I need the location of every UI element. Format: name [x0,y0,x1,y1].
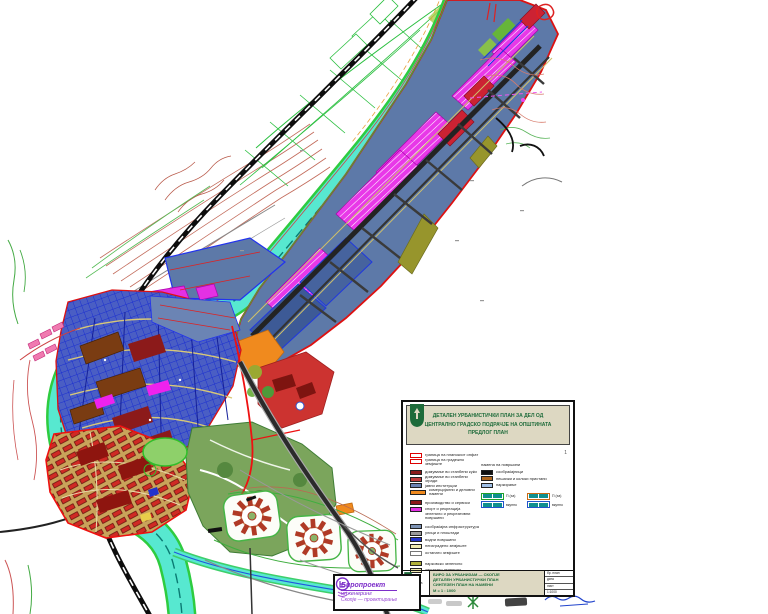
garden-circles [214,487,400,572]
summary-table-cell [483,503,492,507]
legend-title-line1: ДЕТАЛЕН УРБАНИСТИЧКИ ПЛАН ЗА ДЕЛ ОД [411,412,565,421]
legend-swatch [410,500,422,505]
legend-items-right: сообраќајниципешачки и колски пристапипа… [481,469,573,489]
legend-swatch [410,537,422,542]
legend-swatch [410,531,422,536]
legend-item-label: паркирање [496,483,517,487]
legend-item: сообраќајници [481,469,573,476]
summary-table-label: П (ха) [552,494,561,498]
summary-table-cell [493,503,502,507]
summary-table-cell [493,494,502,498]
legend-swatch [481,470,493,475]
summary-table-row: вкупно [527,501,563,508]
legend-item-label: останато земјиште [425,551,460,555]
legend-swatch [481,476,493,481]
legend-item: производство и сервиси [410,500,480,507]
summary-table-box [481,501,504,508]
summary-table-label: вкупно [552,503,563,507]
legend-swatch [410,490,426,495]
legend-swatch [481,483,493,488]
development-corridor [233,0,558,372]
summary-table-box [481,493,504,500]
summary-table-box [527,501,550,508]
legend-swatch [410,544,422,549]
legend-item-label: водни површини [425,538,456,542]
summary-table-label: вкупно [506,503,517,507]
legend-item-label: сообраќајна инфраструктура [425,525,479,529]
legend-swatch [410,561,422,566]
legend-item: домување во станбени згради [410,476,480,483]
legend-title-line3: ПРЕДЛОГ ПЛАН [411,429,565,438]
legend-item: пешачки и колски пристапи [481,476,573,483]
legend-title-line2: ЦЕНТРАЛНО ГРАДСКО ПОДРАЧЈЕ НА ОПШТИНАТА [411,421,565,430]
green-asterisk [468,595,478,609]
legend-swatch [410,453,422,458]
summary-table-cell [529,503,538,507]
legend-panel: ДЕТАЛЕН УРБАНИСТИЧКИ ПЛАН ЗА ДЕЛ ОД ЦЕНТ… [401,400,575,597]
legend-item: останато земјиште [410,550,480,557]
legend-item-label: производство и сервиси [425,501,470,505]
edge-vegetation-lines [5,240,37,614]
legend-body: 1 граница на планскиот опфатграница на г… [403,448,573,574]
legend-item-label: пешачки и колски пристапи [496,477,547,481]
legend-item-label: зеленило и рекреативни површини [425,512,480,520]
legend-col-right: намена на површини сообраќајниципешачки … [481,462,573,510]
legend-item: паркирање [481,482,573,489]
legend-swatch [410,507,422,512]
legend-right-caption: намена на површини [481,462,573,467]
sheet-number-mark: 1 [564,450,567,456]
legend-item-label: неизградено земјиште [425,544,467,548]
legend-item-label: граница на градежно земјиште [425,458,480,466]
legend-item-label: улици и плоштади [425,531,459,535]
legend-item: водни површини [410,537,480,544]
stamp-line3: Скопје — проектирање [341,597,397,603]
summary-table-row: вкупно [481,501,517,508]
legend-title: ДЕТАЛЕН УРБАНИСТИЧКИ ПЛАН ЗА ДЕЛ ОД ЦЕНТ… [407,412,569,438]
sheet-edge-artifacts [400,595,595,609]
municipal-emblem-icon [408,402,426,428]
title-block-row: 1:1000 [545,590,573,595]
legend-swatch [410,459,422,464]
summary-table: П (ха)вкупно [527,493,563,510]
summary-table-box [527,493,550,500]
legend-swatch [410,477,422,482]
legend-items-left: граница на планскиот опфатграница на гра… [410,452,480,574]
title-block-org-cell: БИРО ЗА УРБАНИЗАМ — СКОПЈЕ ДЕТАЛЕН УРБАН… [430,571,545,595]
legend-swatch [410,483,422,488]
title-block-rows: бр. пландаталист1:1000 [545,571,573,595]
map-canvas [0,0,768,614]
blue-signature-scribble [545,596,595,602]
summary-table: П (ха)вкупно [481,493,517,510]
plan-sheet: ДЕТАЛЕН УРБАНИСТИЧКИ ПЛАН ЗА ДЕЛ ОД ЦЕНТ… [0,0,768,614]
surveyor-stamp: Биропроект инженеринг Скопје — проектира… [333,574,421,611]
legend-item: граница на градежно земјиште [410,459,480,466]
legend-swatch [410,524,422,529]
summary-table-row: П (ха) [481,493,517,500]
legend-swatch [410,551,422,556]
org-line4: М = 1 : 1000 [433,588,541,593]
legend-item-label: комерцијални и деловни намени [429,488,480,496]
summary-table-cell [483,494,492,498]
legend-item-label: парковско зеленило [425,562,462,566]
legend-item: неизградено земјиште [410,543,480,550]
legend-item-label: домување во станбени згради [425,475,480,483]
legend-swatch [410,470,422,475]
legend-item: улици и плоштади [410,530,480,537]
summary-table-cell [539,503,548,507]
legend-item: парковско зеленило [410,560,480,567]
summary-table-label: П (ха) [506,494,515,498]
legend-item: зеленило и рекреативни површини [410,513,480,520]
legend-item: сообраќајна инфраструктура [410,523,480,530]
legend-header: ДЕТАЛЕН УРБАНИСТИЧКИ ПЛАН ЗА ДЕЛ ОД ЦЕНТ… [406,405,570,445]
legend-tables: П (ха)вкупноП (ха)вкупно [481,493,573,510]
summary-table-cell [529,494,538,498]
stamp-logo-icon [335,576,350,598]
legend-item-label: сообраќајници [496,470,523,474]
summary-table-row: П (ха) [527,493,563,500]
title-block: заверка БИРО ЗА УРБАНИЗАМ — СКОПЈЕ ДЕТАЛ… [403,570,573,595]
summary-table-cell [539,494,548,498]
legend-item: комерцијални и деловни намени [410,489,480,496]
